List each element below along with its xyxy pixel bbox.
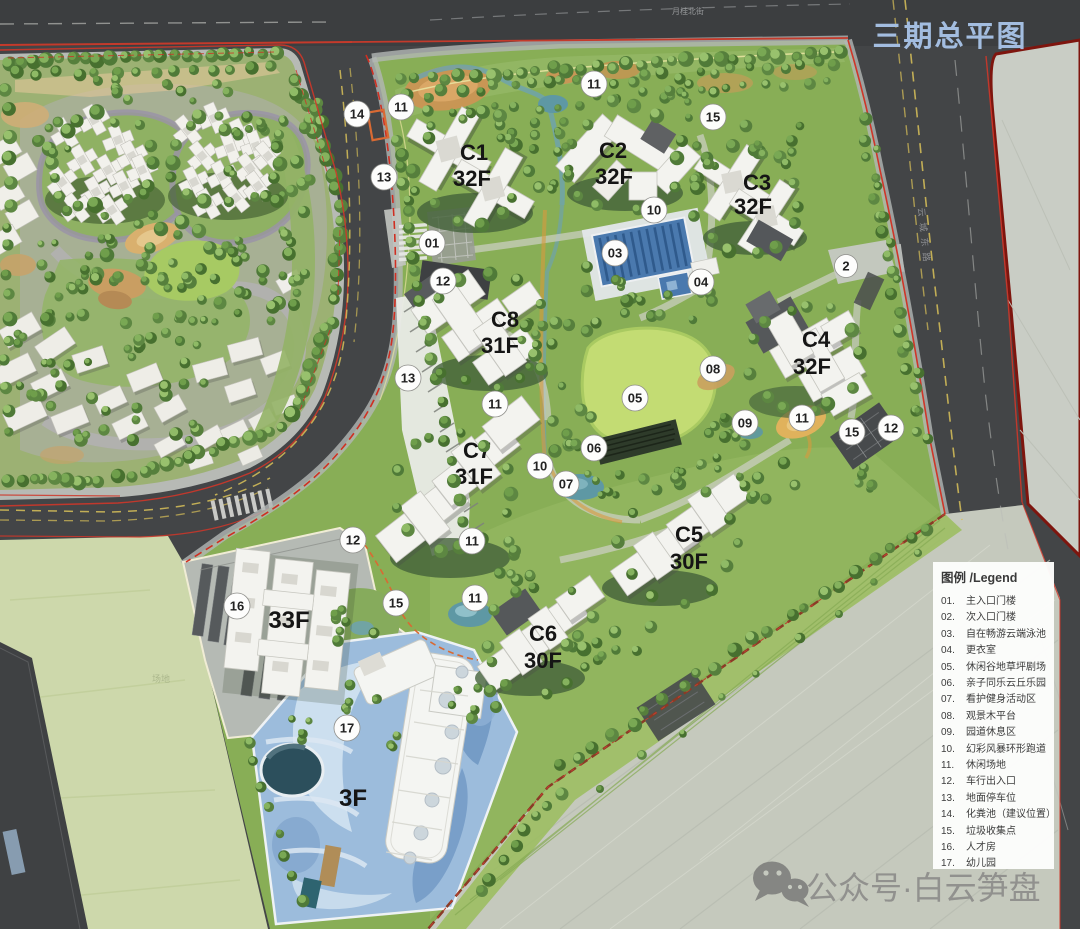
svg-text:观景木平台: 观景木平台 (966, 709, 1016, 722)
svg-text:C3: C3 (743, 170, 771, 195)
svg-text:C4: C4 (802, 327, 831, 352)
svg-text:05.: 05. (941, 662, 955, 673)
svg-text:14: 14 (350, 107, 365, 122)
svg-text:03: 03 (608, 246, 622, 261)
svg-text:32F: 32F (453, 166, 491, 191)
svg-text:11: 11 (488, 397, 502, 412)
svg-text:自在畅游云端泳池: 自在畅游云端泳池 (966, 627, 1046, 640)
svg-text:C8: C8 (491, 307, 519, 332)
svg-text:C5: C5 (675, 522, 703, 547)
svg-text:31F: 31F (455, 464, 493, 489)
svg-text:11: 11 (465, 534, 479, 549)
svg-text:12: 12 (436, 274, 450, 289)
svg-text:13.: 13. (941, 793, 955, 804)
svg-text:04.: 04. (941, 645, 955, 656)
svg-text:次入口门楼: 次入口门楼 (966, 610, 1016, 623)
svg-text:化粪池（建议位置）: 化粪池（建议位置） (966, 807, 1056, 820)
svg-text:17.: 17. (941, 858, 955, 869)
svg-text:更衣室: 更衣室 (966, 643, 996, 656)
svg-text:三期总平图: 三期总平图 (872, 20, 1027, 53)
svg-text:11: 11 (394, 100, 408, 115)
svg-text:16: 16 (230, 599, 244, 614)
svg-text:休闲谷地草坪剧场: 休闲谷地草坪剧场 (966, 660, 1046, 673)
svg-text:16.: 16. (941, 842, 955, 853)
svg-text:15: 15 (389, 596, 403, 611)
svg-text:06: 06 (587, 441, 601, 456)
svg-text:15.: 15. (941, 826, 955, 837)
svg-text:30F: 30F (670, 549, 708, 574)
svg-text:月桂北街: 月桂北街 (672, 6, 704, 16)
svg-text:13: 13 (401, 371, 415, 386)
svg-text:人才房: 人才房 (966, 840, 996, 853)
svg-text:15: 15 (845, 425, 859, 440)
svg-text:C2: C2 (599, 138, 627, 163)
svg-text:休闲场地: 休闲场地 (966, 758, 1006, 771)
svg-text:04: 04 (694, 275, 709, 290)
svg-text:亲子同乐云丘乐园: 亲子同乐云丘乐园 (966, 676, 1046, 689)
svg-text:11: 11 (468, 591, 482, 606)
svg-text:15: 15 (706, 110, 720, 125)
svg-text:07.: 07. (941, 694, 955, 705)
svg-text:14.: 14. (941, 809, 955, 820)
svg-text:07: 07 (559, 477, 573, 492)
svg-text:C1: C1 (460, 140, 488, 165)
svg-text:30F: 30F (524, 648, 562, 673)
svg-text:垃圾收集点: 垃圾收集点 (966, 824, 1016, 837)
svg-text:17: 17 (340, 721, 354, 736)
svg-text:3F: 3F (339, 785, 367, 812)
svg-text:11.: 11. (941, 760, 954, 771)
svg-text:09: 09 (738, 416, 752, 431)
svg-text:09.: 09. (941, 727, 955, 738)
svg-text:2: 2 (842, 259, 849, 274)
svg-text:13: 13 (377, 170, 391, 185)
svg-text:11: 11 (587, 77, 601, 92)
svg-text:图例 /Legend: 图例 /Legend (941, 570, 1017, 585)
svg-text:32F: 32F (595, 164, 633, 189)
svg-text:10: 10 (647, 203, 661, 218)
svg-text:03.: 03. (941, 629, 955, 640)
svg-text:幻彩风暴环形跑道: 幻彩风暴环形跑道 (966, 742, 1046, 755)
svg-text:05: 05 (628, 391, 642, 406)
svg-text:10: 10 (533, 459, 547, 474)
svg-text:01.: 01. (941, 596, 955, 607)
svg-text:12: 12 (884, 421, 898, 436)
svg-text:公众号·白云笋盘: 公众号·白云笋盘 (806, 870, 1041, 906)
svg-text:31F: 31F (481, 333, 519, 358)
svg-text:08: 08 (706, 362, 720, 377)
svg-text:02.: 02. (941, 612, 955, 623)
svg-text:11: 11 (795, 411, 809, 426)
svg-text:地面停车位: 地面停车位 (966, 791, 1016, 804)
svg-text:12: 12 (346, 533, 360, 548)
svg-text:32F: 32F (793, 354, 831, 379)
svg-text:C6: C6 (529, 621, 557, 646)
svg-text:主入口门楼: 主入口门楼 (966, 594, 1016, 607)
svg-text:园道休息区: 园道休息区 (966, 725, 1016, 738)
svg-text:看护健身活动区: 看护健身活动区 (966, 692, 1036, 705)
svg-text:01: 01 (425, 236, 439, 251)
svg-text:场地: 场地 (152, 673, 170, 684)
svg-text:12.: 12. (941, 776, 955, 787)
svg-text:08.: 08. (941, 711, 955, 722)
svg-text:33F: 33F (268, 607, 309, 634)
svg-text:幼儿园: 幼儿园 (966, 856, 996, 869)
svg-text:32F: 32F (734, 194, 772, 219)
svg-text:10.: 10. (941, 744, 955, 755)
svg-text:车行出入口: 车行出入口 (966, 774, 1016, 787)
svg-text:06.: 06. (941, 678, 955, 689)
